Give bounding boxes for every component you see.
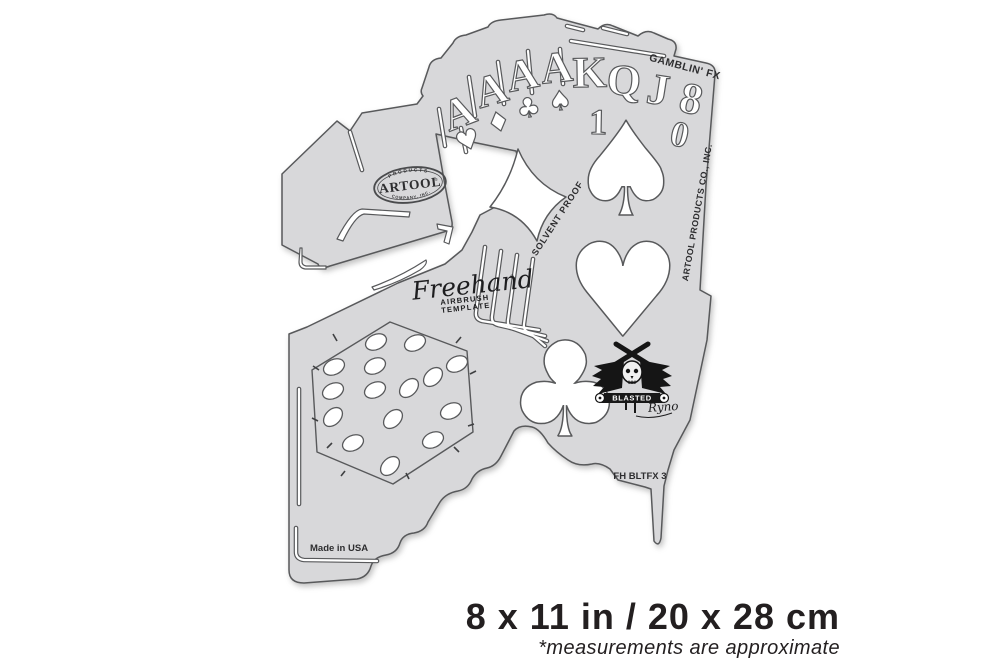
airbrush-template-graphic: ♠ ♥ ♣ bbox=[0, 0, 1000, 669]
made-in-label: Made in USA bbox=[310, 543, 368, 554]
sku-label: FH BLTFX 3 bbox=[613, 471, 666, 482]
card-rank: 1 bbox=[589, 102, 608, 142]
card-rank: Q bbox=[605, 55, 643, 106]
spade-pip-cutout: ♠ bbox=[547, 85, 574, 118]
artist-logo-word: BLASTED bbox=[612, 394, 652, 403]
caption-dimensions: 8 x 11 in / 20 x 28 cm bbox=[466, 599, 840, 635]
card-rank: K bbox=[572, 48, 607, 98]
skull-icon bbox=[622, 361, 642, 384]
freehand-reg-icon: ® bbox=[510, 273, 515, 280]
caption: 8 x 11 in / 20 x 28 cm *measurements are… bbox=[466, 599, 840, 658]
product-image: ♠ ♥ ♣ bbox=[0, 0, 1000, 669]
artist-signature: Ryno bbox=[647, 399, 679, 415]
caption-note: *measurements are approximate bbox=[466, 638, 840, 658]
